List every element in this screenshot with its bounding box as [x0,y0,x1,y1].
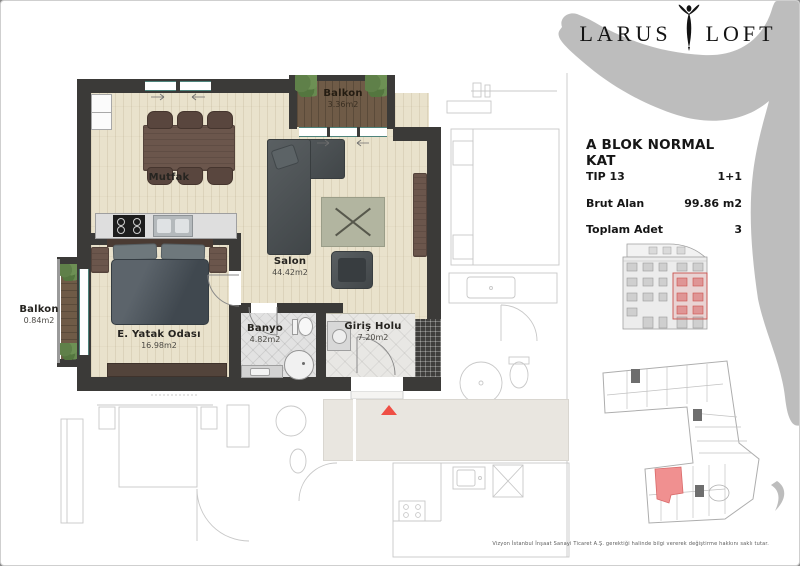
building-elevation-drawing [619,233,713,335]
room-label-mutfak: Mutfak [129,172,209,183]
floor-plan-sheet: Balkon 3.36m2 Mutfak Salon 44.42m2 Balko… [0,0,800,566]
unit-info-panel: A BLOK NORMAL KAT TIP 13 1+1 Brut Alan 9… [586,137,742,236]
brand-name-right: LOFT [706,21,777,47]
footer-disclaimer: Vizyon İstanbul İnşaat Sanayi Ticaret A.… [492,541,769,547]
room-label-giris: Giriş Holu [329,321,417,332]
room-area-balkon-top: 3.36m2 [297,100,389,109]
room-label-salon: Salon [250,256,330,267]
info-type-label: TIP 13 [586,170,625,183]
info-type-value: 1+1 [717,170,742,183]
room-label-balkon-left: Balkon [9,304,69,315]
room-area-balkon-left: 0.84m2 [9,316,69,325]
site-plan-drawing [597,357,783,527]
brand-logo: LARUS LOFT [553,17,800,51]
room-area-salon: 44.42m2 [250,268,330,277]
info-gross-area-label: Brut Alan [586,197,644,210]
plan-detail-lines [1,1,581,566]
info-title: A BLOK NORMAL KAT [586,137,742,169]
info-gross-area-value: 99.86 m2 [684,197,742,210]
room-area-giris: 7.20m2 [329,333,417,342]
room-label-yatak: E. Yatak Odası [109,329,209,340]
room-area-yatak: 16.98m2 [109,341,209,350]
room-label-balkon-top: Balkon [297,88,389,99]
info-total-units-value: 3 [734,223,742,236]
woman-figure-icon [677,3,701,51]
brand-name-left: LARUS [579,21,671,47]
highlighted-floors [673,273,707,319]
room-label-banyo: Banyo [225,323,305,334]
room-area-banyo: 4.82m2 [225,335,305,344]
